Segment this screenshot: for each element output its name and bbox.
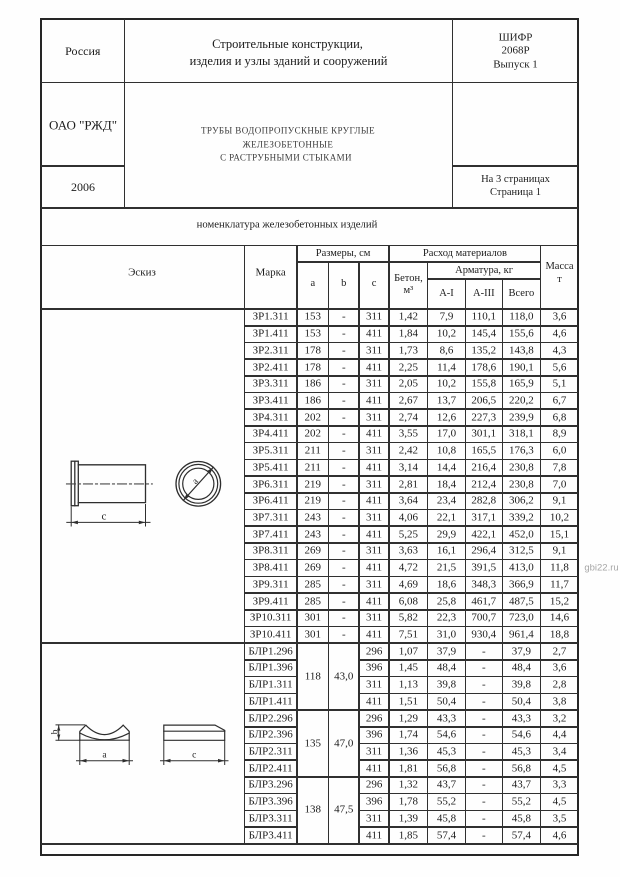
svg-text:c: c bbox=[102, 511, 107, 523]
svg-text:a: a bbox=[102, 751, 107, 761]
svg-text:b: b bbox=[50, 729, 60, 734]
svg-text:c: c bbox=[192, 751, 196, 761]
